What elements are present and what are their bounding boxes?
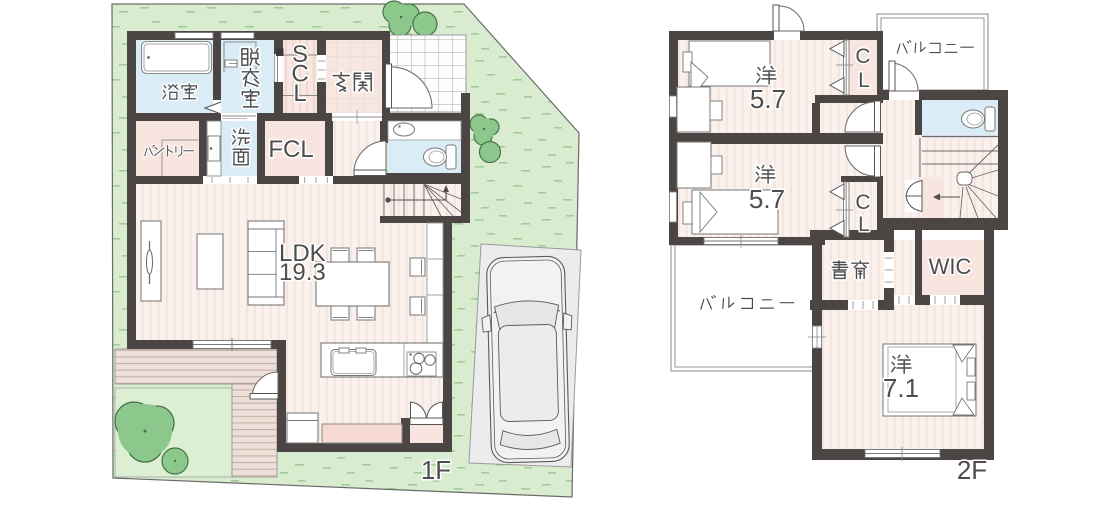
svg-text:1F: 1F (421, 455, 451, 485)
svg-text:5.7: 5.7 (749, 184, 785, 214)
svg-text:L: L (858, 213, 870, 236)
svg-text:C: C (855, 191, 870, 214)
svg-text:5.7: 5.7 (750, 84, 786, 114)
svg-text:C: C (855, 45, 870, 68)
svg-text:WIC: WIC (929, 254, 972, 279)
svg-text:7.1: 7.1 (883, 373, 919, 403)
svg-text:FCL: FCL (268, 136, 313, 163)
svg-text:L: L (293, 80, 306, 107)
svg-text:2F: 2F (957, 455, 987, 485)
svg-text:L: L (858, 69, 870, 92)
svg-text:19.3: 19.3 (279, 259, 326, 286)
